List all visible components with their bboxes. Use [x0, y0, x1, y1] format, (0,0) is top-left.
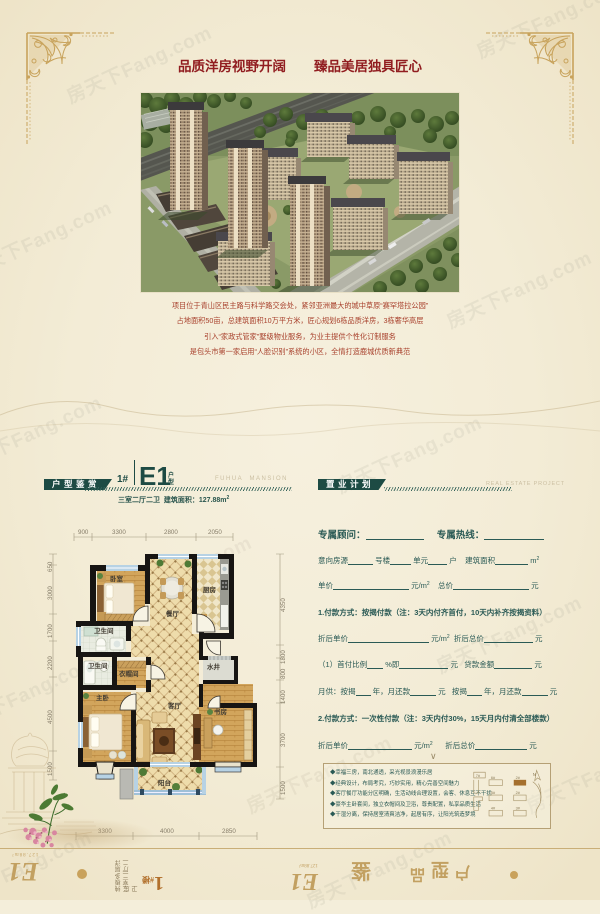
svg-text:1800: 1800	[280, 650, 287, 664]
svg-text:卧室: 卧室	[110, 574, 124, 583]
svg-text:2#: 2#	[516, 776, 521, 780]
svg-text:6#: 6#	[491, 776, 496, 780]
svg-text:水井: 水井	[207, 662, 221, 671]
svg-text:N: N	[533, 772, 536, 777]
svg-text:2800: 2800	[164, 529, 178, 536]
svg-text:餐厅: 餐厅	[165, 609, 180, 618]
svg-text:650: 650	[47, 561, 54, 572]
svg-text:卫生间: 卫生间	[88, 661, 108, 670]
svg-text:阳台: 阳台	[158, 778, 172, 787]
svg-text:2200: 2200	[47, 656, 54, 670]
svg-text:书房: 书房	[214, 707, 228, 716]
svg-text:3300: 3300	[112, 529, 126, 536]
svg-text:3#: 3#	[516, 806, 521, 810]
svg-text:客厅: 客厅	[167, 701, 182, 710]
svg-text:7#: 7#	[476, 774, 481, 778]
svg-text:800: 800	[280, 668, 287, 679]
svg-text:900: 900	[78, 529, 89, 536]
svg-text:4350: 4350	[280, 598, 287, 612]
svg-text:4500: 4500	[47, 710, 54, 724]
svg-text:衣帽间: 衣帽间	[119, 669, 139, 678]
svg-text:2#: 2#	[516, 791, 521, 795]
svg-text:5#: 5#	[491, 791, 496, 795]
svg-text:1700: 1700	[47, 624, 54, 638]
svg-text:厨房: 厨房	[203, 585, 217, 594]
svg-text:2850: 2850	[222, 828, 236, 835]
svg-text:1500: 1500	[280, 781, 287, 795]
svg-text:主卧: 主卧	[96, 693, 110, 702]
svg-text:2050: 2050	[208, 529, 222, 536]
svg-text:4#: 4#	[491, 806, 496, 810]
svg-text:卫生间: 卫生间	[94, 626, 114, 635]
svg-text:3700: 3700	[280, 733, 287, 747]
svg-text:3000: 3000	[47, 586, 54, 600]
svg-text:1400: 1400	[280, 690, 287, 704]
